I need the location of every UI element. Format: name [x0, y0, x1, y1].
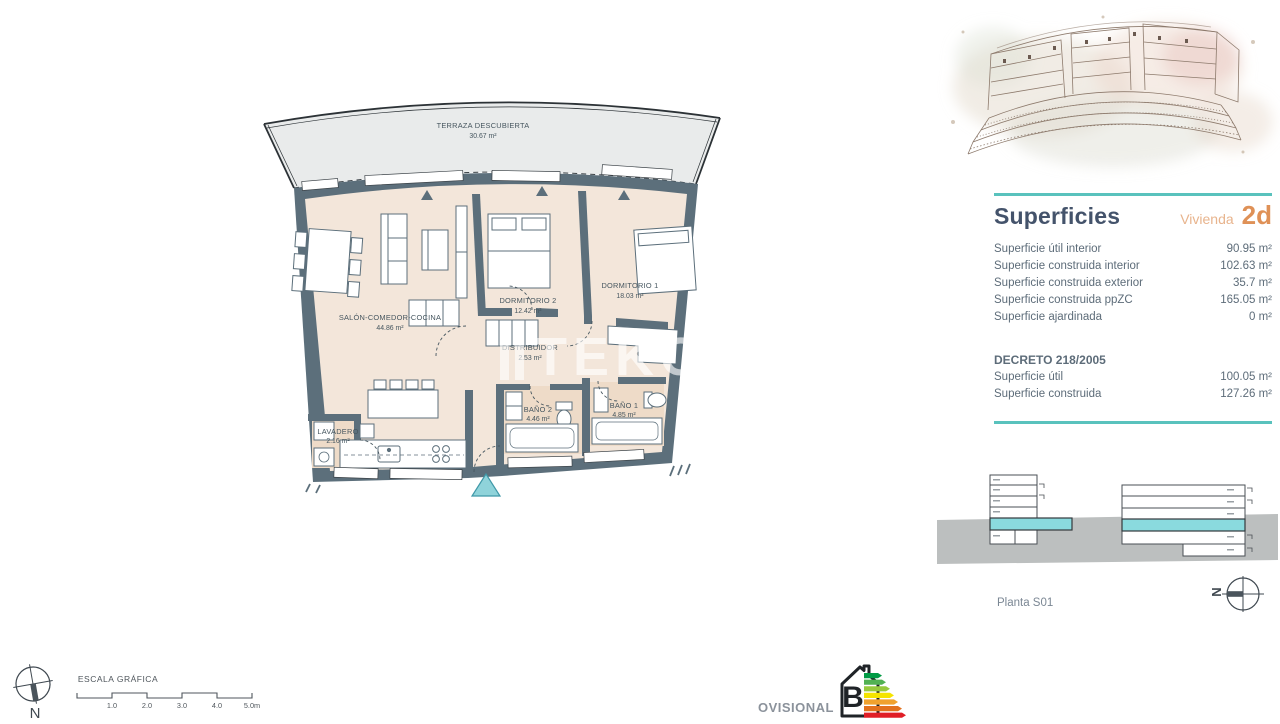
row-label: Superficie construida ppZC	[994, 292, 1133, 309]
room-label: BAÑO 2	[524, 405, 553, 414]
row-value: 127.26 m²	[1220, 386, 1272, 403]
toilet	[648, 393, 666, 407]
table-row: Superficie útil interior 90.95 m²	[994, 241, 1272, 258]
scale-tick: 5.0m	[244, 701, 260, 710]
table-row: Superficie construida 127.26 m²	[994, 386, 1272, 403]
room-label: DORMITORIO 2	[499, 296, 556, 305]
scale-tick: 4.0	[212, 701, 222, 710]
row-label: Superficie útil interior	[994, 241, 1101, 258]
room-area: 44.86 m²	[376, 325, 404, 332]
highlighted-floor-slab	[1122, 519, 1245, 531]
scale-tick: 1.0	[107, 701, 117, 710]
decreto-table: Superficie útil 100.05 m² Superficie con…	[994, 369, 1272, 403]
scale-tick: 2.0	[142, 701, 152, 710]
superficies-panel: Superficies Vivienda 2d Superficie útil …	[994, 200, 1272, 403]
room-label: LAVADERO	[317, 427, 358, 436]
room-label: BAÑO 1	[610, 401, 639, 410]
room-label: DISTRIBUIDOR	[502, 343, 558, 352]
row-value: 102.63 m²	[1220, 258, 1272, 275]
highlighted-floor-slab	[990, 518, 1072, 530]
table-row: Superficie construida interior 102.63 m²	[994, 258, 1272, 275]
energy-scale-bars	[864, 673, 906, 718]
table-row: Superficie construida ppZC 165.05 m²	[994, 292, 1272, 309]
scale-bar: ESCALA GRÁFICA 1.0 2.0 3.0 4.0 5.0m	[70, 670, 270, 712]
row-value: 35.7 m²	[1233, 275, 1272, 292]
energy-rating-letter: B	[842, 681, 864, 714]
sofa	[381, 214, 407, 284]
row-label: Superficie ajardinada	[994, 309, 1102, 326]
compass-letter: N	[30, 705, 41, 722]
panel-title: Superficies	[994, 203, 1120, 230]
table-row: Superficie útil 100.05 m²	[994, 369, 1272, 386]
table-row: Superficie construida exterior 35.7 m²	[994, 275, 1272, 292]
compass-needle	[1227, 591, 1243, 597]
kitchen-counter	[340, 440, 466, 468]
scale-tick-labels: 1.0 2.0 3.0 4.0 5.0m	[107, 701, 260, 710]
row-label: Superficie construida interior	[994, 258, 1140, 275]
divider-top	[994, 193, 1272, 196]
row-value: 0 m²	[1249, 309, 1272, 326]
row-value: 100.05 m²	[1220, 369, 1272, 386]
scale-tick: 3.0	[177, 701, 187, 710]
section-compass-icon: N	[1196, 566, 1276, 622]
divider-bottom	[994, 421, 1272, 424]
room-label: DORMITORIO 1	[601, 281, 658, 290]
drawing-sheet: TERRAZA DESCUBIERTA 30.67 m² SALÓN-COMED…	[0, 0, 1280, 724]
plan-compass-icon: N	[5, 658, 65, 722]
room-label: TERRAZA DESCUBIERTA	[437, 121, 530, 130]
room-area: 12.42 m²	[514, 308, 542, 315]
compass-letter: N	[1209, 587, 1224, 596]
row-label: Superficie construida	[994, 386, 1101, 403]
building-section-diagram	[935, 458, 1280, 566]
floor-plan: TERRAZA DESCUBIERTA 30.67 m² SALÓN-COMED…	[250, 78, 740, 510]
scale-ruler	[77, 693, 252, 698]
row-label: Superficie útil	[994, 369, 1063, 386]
room-area: 4.46 m²	[526, 416, 550, 423]
armchair	[422, 230, 448, 270]
plant-label: Planta S01	[997, 597, 1053, 609]
room-label: SALÓN-COMEDOR-COCINA	[339, 313, 441, 322]
room-area: 30.67 m²	[469, 133, 497, 140]
row-label: Superficie construida exterior	[994, 275, 1143, 292]
decreto-title: DECRETO 218/2005	[994, 352, 1272, 369]
table-row: Superficie ajardinada 0 m²	[994, 309, 1272, 326]
room-area: 2.53 m²	[518, 355, 542, 362]
superficies-table: Superficie útil interior 90.95 m² Superf…	[994, 241, 1272, 326]
unit-code: 2d	[1242, 200, 1272, 231]
room-area: 2.16 m²	[326, 438, 350, 445]
dining-table	[292, 228, 363, 298]
scale-title: ESCALA GRÁFICA	[78, 674, 158, 684]
compass-needle	[30, 684, 38, 702]
energy-certificate: PROVISIONAL B	[758, 654, 928, 722]
building-watercolor-sketch	[933, 2, 1280, 192]
room-area: 18.03 m²	[616, 293, 644, 300]
unit-label: Vivienda	[1180, 211, 1233, 227]
row-value: 90.95 m²	[1227, 241, 1272, 258]
room-area: 4.85 m²	[612, 412, 636, 419]
kitchen-island	[368, 390, 438, 418]
toilet-tank	[556, 402, 572, 410]
provisional-label: PROVISIONAL	[758, 700, 834, 715]
row-value: 165.05 m²	[1220, 292, 1272, 309]
